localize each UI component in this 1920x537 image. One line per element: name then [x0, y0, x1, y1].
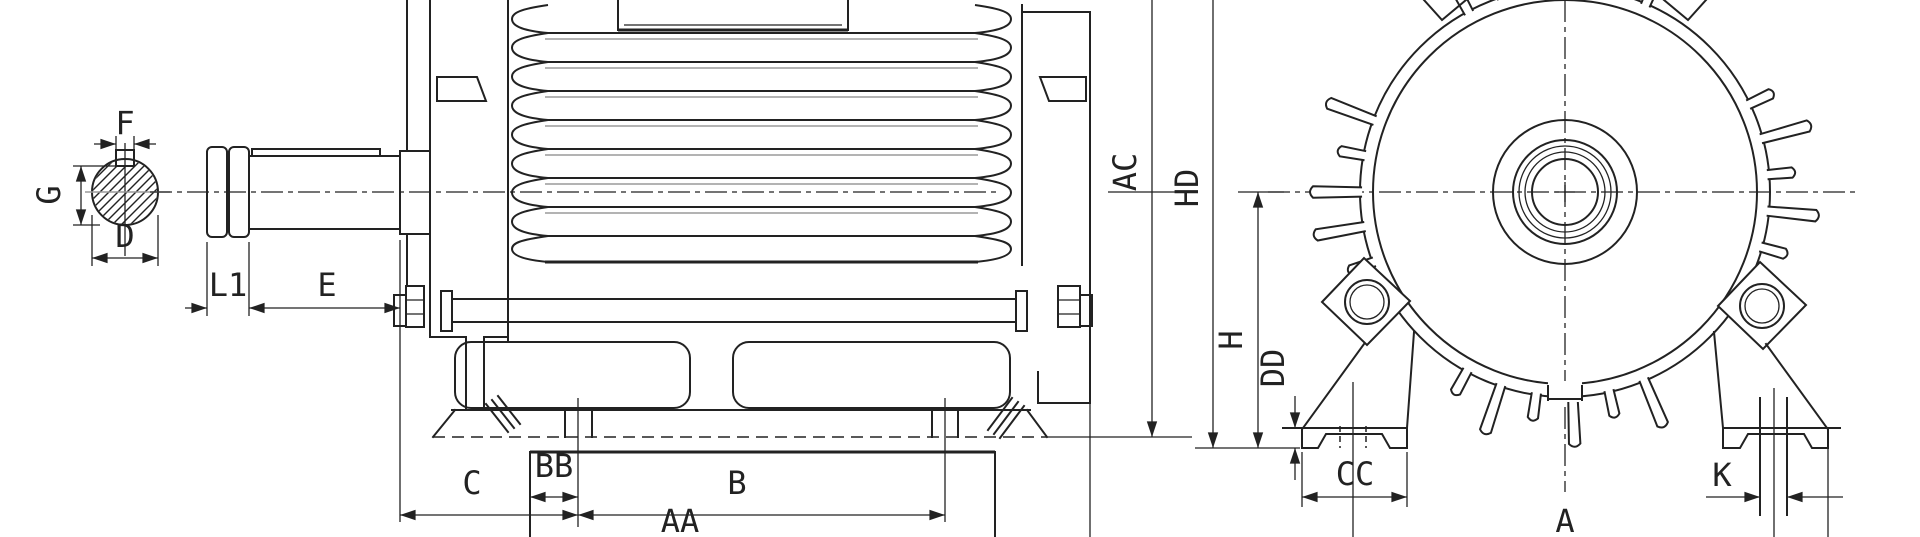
left-bolt-boss	[1322, 258, 1410, 345]
dim-label-e: E	[317, 266, 336, 304]
dim-label-f: F	[115, 104, 134, 142]
dim-label-k: K	[1712, 456, 1732, 494]
terminal-box	[618, 0, 848, 30]
dim-label-dd: DD	[1254, 349, 1292, 388]
front-nut	[406, 286, 424, 327]
dim-label-a: A	[1555, 502, 1574, 537]
dim-label-c: C	[462, 464, 481, 502]
motor-dimension-drawing: F G D	[0, 0, 1920, 537]
dim-label-cc: CC	[1336, 455, 1375, 493]
rear-nut	[1058, 286, 1080, 327]
cooling-fins-side	[512, 5, 1011, 262]
right-foot	[1723, 388, 1840, 537]
dim-label-d: D	[115, 217, 134, 255]
tie-rod	[394, 286, 1092, 331]
motor-side-view: L1 E BB C B AA AC HD	[150, 0, 1300, 537]
dim-label-hd: HD	[1168, 169, 1206, 208]
dim-label-l1: L1	[209, 266, 248, 304]
dim-label-aa: AA	[661, 502, 700, 537]
shaft-section-view: F G D	[10, 104, 235, 266]
dim-label-b: B	[727, 464, 746, 502]
slide-base	[433, 342, 1047, 537]
dim-label-ac: AC	[1106, 153, 1144, 192]
front-lug	[437, 77, 486, 101]
rear-lug	[1040, 77, 1086, 101]
motor-front-view: H DD CC K A	[1212, 0, 1858, 537]
drawing-canvas: F G D	[0, 0, 1920, 537]
right-bolt-boss	[1718, 262, 1806, 349]
dim-label-g: G	[30, 185, 68, 204]
dim-label-bb: BB	[535, 447, 574, 485]
dim-label-h: H	[1212, 330, 1250, 349]
